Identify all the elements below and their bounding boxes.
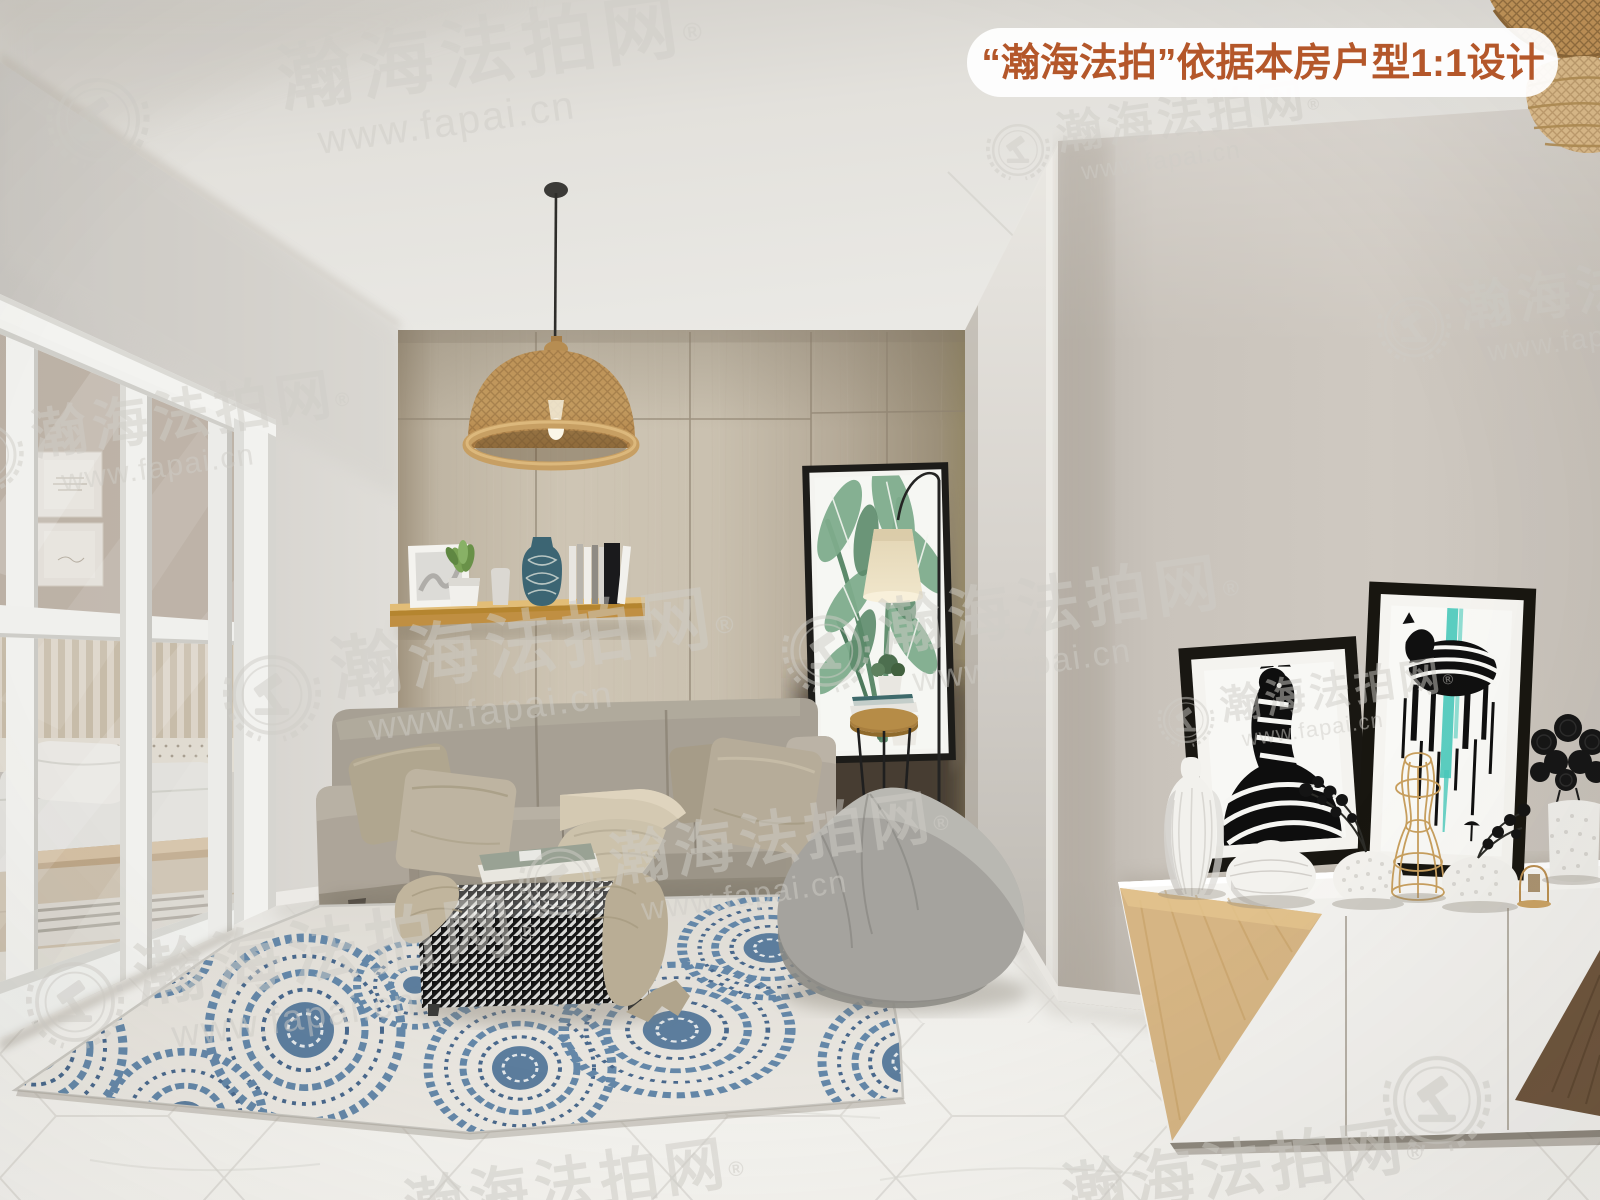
svg-text:“瀚海法拍”依据本房户型1:1设计: “瀚海法拍”依据本房户型1:1设计	[981, 42, 1544, 85]
